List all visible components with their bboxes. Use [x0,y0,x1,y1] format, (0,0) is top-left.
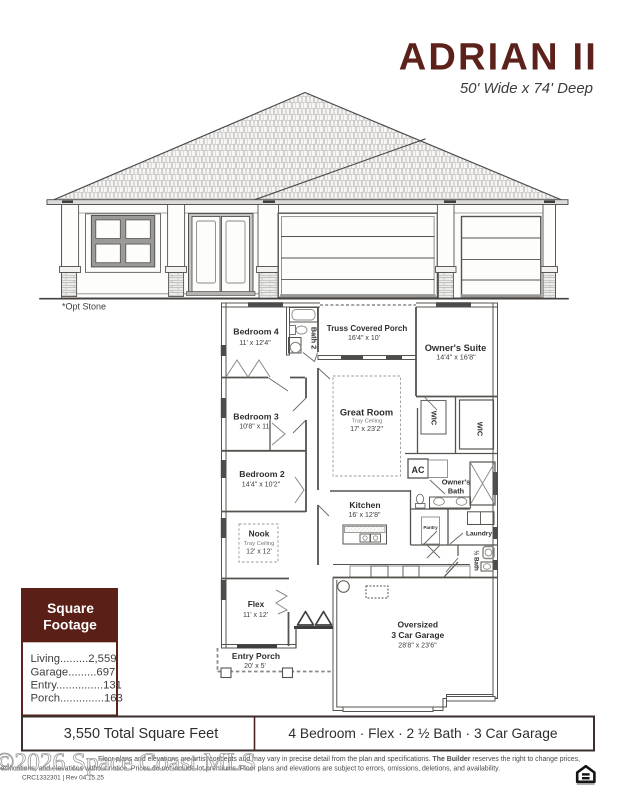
svg-text:16' x 12'8": 16' x 12'8" [348,512,381,519]
svg-text:14'4" x 10'2": 14'4" x 10'2" [242,482,281,489]
svg-text:Owner's: Owner's [442,478,471,487]
svg-text:Pantry: Pantry [423,525,438,530]
svg-text:Entry Porch: Entry Porch [232,651,280,661]
svg-text:Great Room: Great Room [340,408,393,418]
svg-text:Laundry: Laundry [466,531,492,538]
svg-text:Owner's Suite: Owner's Suite [425,343,487,353]
svg-text:Truss Covered Porch: Truss Covered Porch [327,324,408,333]
svg-text:Bath: Bath [448,487,464,496]
svg-text:3,550 Total Square Feet: 3,550 Total Square Feet [64,726,219,742]
svg-text:Bedroom 3: Bedroom 3 [233,412,279,422]
svg-text:Bedroom 4: Bedroom 4 [233,327,279,337]
svg-text:WIC: WIC [430,411,439,426]
svg-text:11' x 12': 11' x 12' [243,612,268,619]
svg-text:20' x 5': 20' x 5' [244,663,266,670]
svg-text:WIC: WIC [476,422,485,437]
svg-text:Square: Square [47,601,94,616]
svg-text:Porch..............163: Porch..............163 [31,692,123,704]
svg-text:Tray Ceiling: Tray Ceiling [244,541,275,547]
svg-text:14'4" x 16'8": 14'4" x 16'8" [436,353,476,362]
svg-text:4 Bedroom · Flex · 2 ½ Bath ·: 4 Bedroom · Flex · 2 ½ Bath · 3 Car Gara… [288,726,557,741]
svg-text:Nook: Nook [249,529,270,539]
svg-text:AC: AC [412,465,425,475]
svg-text:3 Car Garage: 3 Car Garage [391,630,444,640]
svg-text:©2026 Space Coast MLS: ©2026 Space Coast MLS [0,747,256,776]
svg-text:16'4" x 10': 16'4" x 10' [348,335,380,342]
svg-text:11' x 12'4": 11' x 12'4" [239,340,271,347]
svg-text:50' Wide x 74' Deep: 50' Wide x 74' Deep [460,80,593,97]
svg-text:½ Bath: ½ Bath [473,550,480,571]
svg-text:Flex: Flex [248,599,265,609]
svg-text:ADRIAN II: ADRIAN II [399,37,598,79]
svg-text:Kitchen: Kitchen [349,500,380,510]
svg-text:Garage.........697: Garage.........697 [31,666,116,678]
svg-text:Oversized: Oversized [397,619,438,629]
svg-text:Entry...............131: Entry...............131 [31,679,122,691]
svg-text:17' x 23'2": 17' x 23'2" [350,424,383,433]
svg-text:Living.........2,559: Living.........2,559 [31,653,117,665]
svg-text:Bedroom 2: Bedroom 2 [239,469,285,479]
svg-text:28'8" x 23'6": 28'8" x 23'6" [398,643,437,650]
svg-text:*Opt Stone: *Opt Stone [62,302,106,312]
svg-text:10'8" x 11': 10'8" x 11' [239,424,271,431]
svg-text:Footage: Footage [43,618,97,633]
svg-text:12' x 12': 12' x 12' [246,549,272,556]
